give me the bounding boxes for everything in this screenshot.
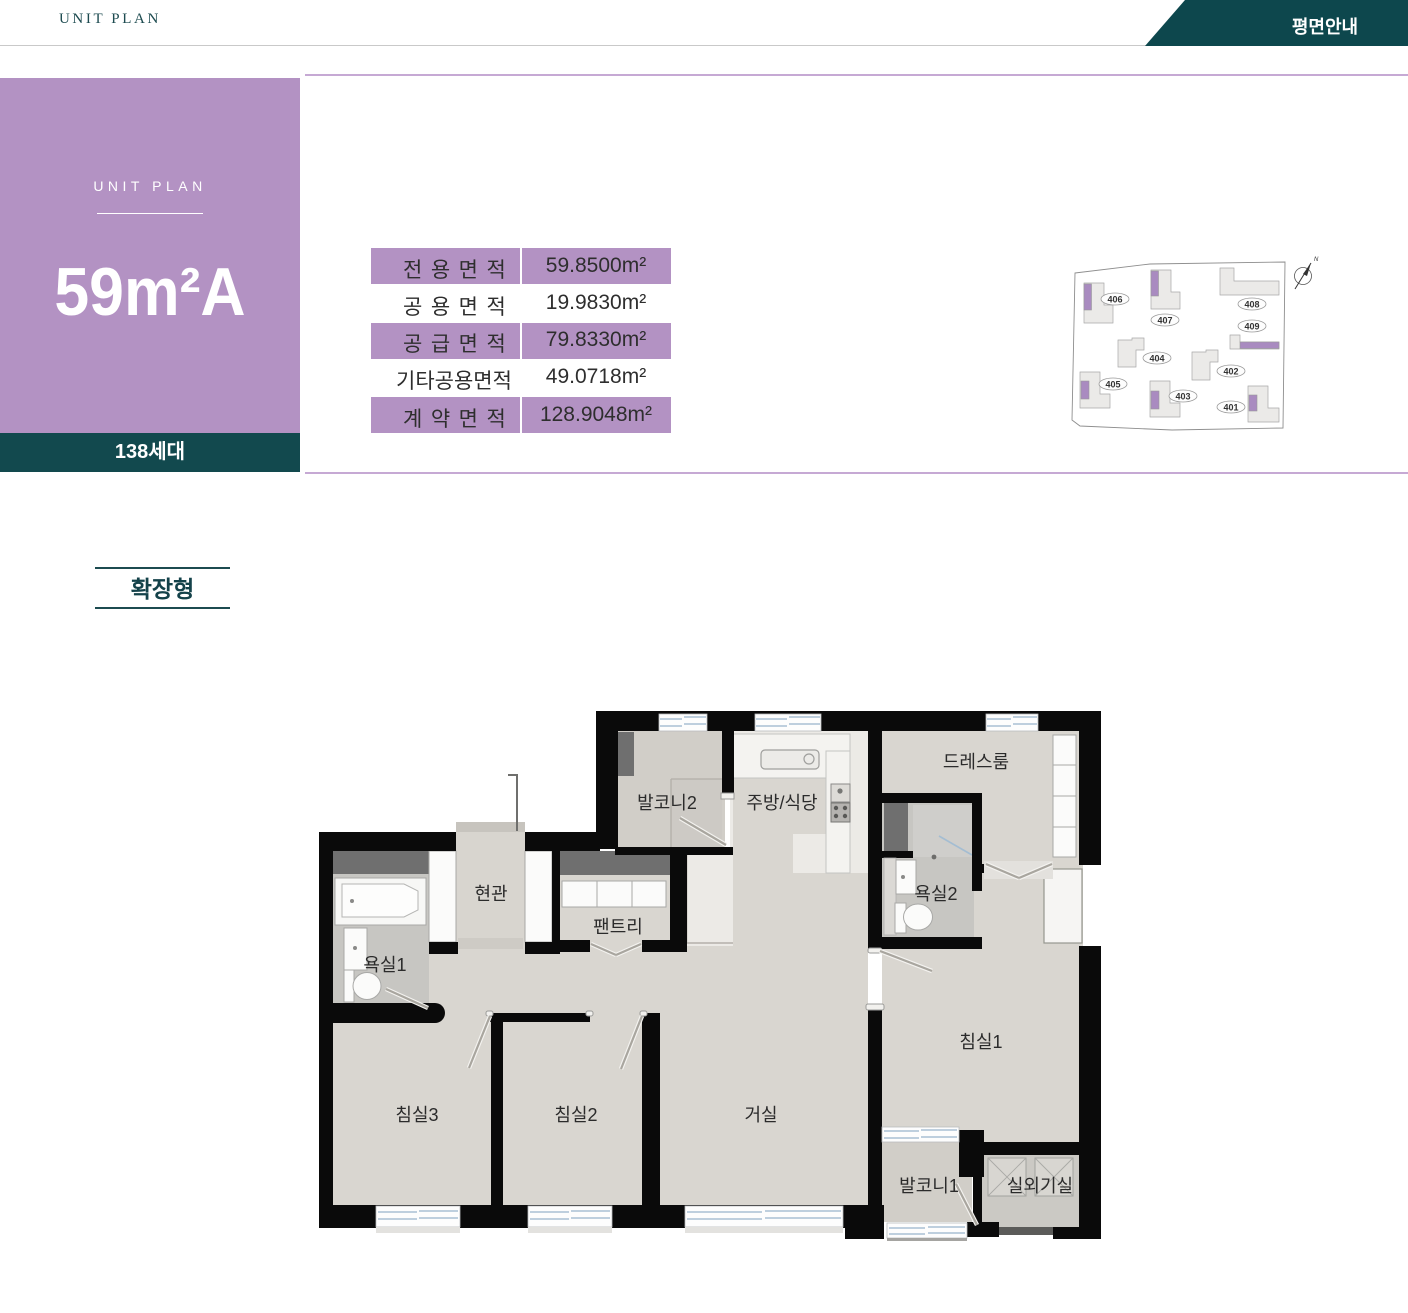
svg-text:408: 408 <box>1244 300 1259 310</box>
svg-text:402: 402 <box>1223 367 1238 377</box>
svg-text:N: N <box>1314 257 1319 263</box>
svg-text:욕실1: 욕실1 <box>363 955 406 975</box>
svg-text:드레스룸: 드레스룸 <box>943 752 1009 772</box>
svg-text:실외기실: 실외기실 <box>1007 1176 1073 1196</box>
svg-text:405: 405 <box>1105 380 1120 390</box>
svg-text:현관: 현관 <box>474 884 507 904</box>
svg-text:침실2: 침실2 <box>554 1105 597 1125</box>
svg-text:406: 406 <box>1107 295 1122 305</box>
svg-text:팬트리: 팬트리 <box>593 917 643 937</box>
svg-text:발코니1: 발코니1 <box>899 1176 959 1196</box>
svg-text:407: 407 <box>1157 316 1172 326</box>
svg-text:409: 409 <box>1244 322 1259 332</box>
svg-text:침실3: 침실3 <box>395 1105 438 1125</box>
svg-text:발코니2: 발코니2 <box>637 793 697 813</box>
svg-text:침실1: 침실1 <box>959 1032 1002 1052</box>
svg-text:욕실2: 욕실2 <box>914 884 957 904</box>
svg-text:404: 404 <box>1149 354 1164 364</box>
svg-text:거실: 거실 <box>744 1105 777 1125</box>
svg-text:401: 401 <box>1223 403 1238 413</box>
svg-text:403: 403 <box>1175 392 1190 402</box>
svg-text:주방/식당: 주방/식당 <box>746 793 817 813</box>
